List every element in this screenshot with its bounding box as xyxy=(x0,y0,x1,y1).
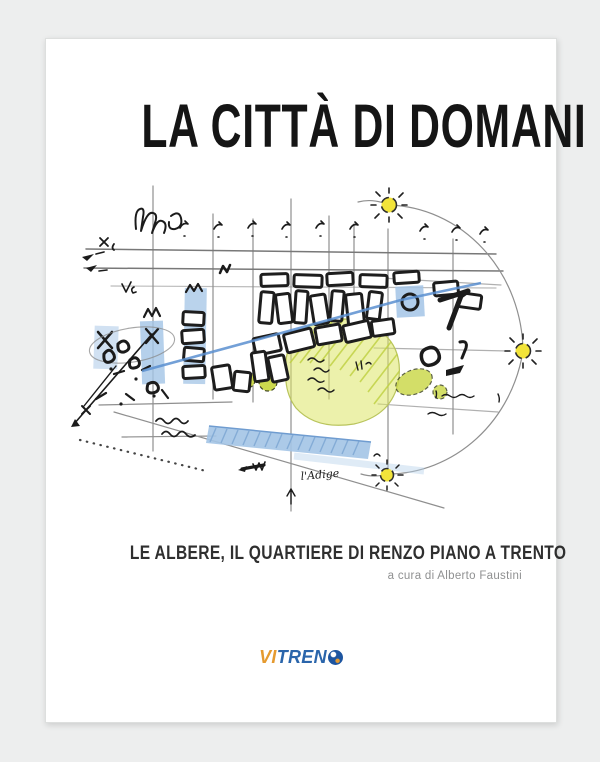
page-background: { "window": { "background": "#edeeee" },… xyxy=(0,0,600,762)
logo-text-orange: VI xyxy=(259,647,277,667)
subtitle: LE ALBERE, IL QUARTIERE DI RENZO PIANO A… xyxy=(82,544,522,565)
book-title-text: LA CITTÀ DI DOMANI xyxy=(141,96,586,157)
architectural-sketch: l'Adige xyxy=(56,174,556,516)
sun-icon xyxy=(371,188,407,222)
subtitle-text: LE ALBERE, IL QUARTIERE DI RENZO PIANO A… xyxy=(130,544,566,565)
curator-credit: a cura di Alberto Faustini xyxy=(82,570,522,582)
direction-arrow xyxy=(71,419,80,427)
logo-final-letter: D xyxy=(335,650,336,651)
book-cover: LA CITTÀ DI DOMANI xyxy=(45,38,557,723)
page-title: LA CITTÀ DI DOMANI xyxy=(46,96,556,157)
sun-icon xyxy=(505,334,541,368)
logo-text-blue: TREN xyxy=(277,647,327,667)
river-label: l'Adige xyxy=(300,467,340,483)
publisher-logo: VITREND xyxy=(46,647,556,668)
logo-globe-icon: D xyxy=(328,650,343,665)
